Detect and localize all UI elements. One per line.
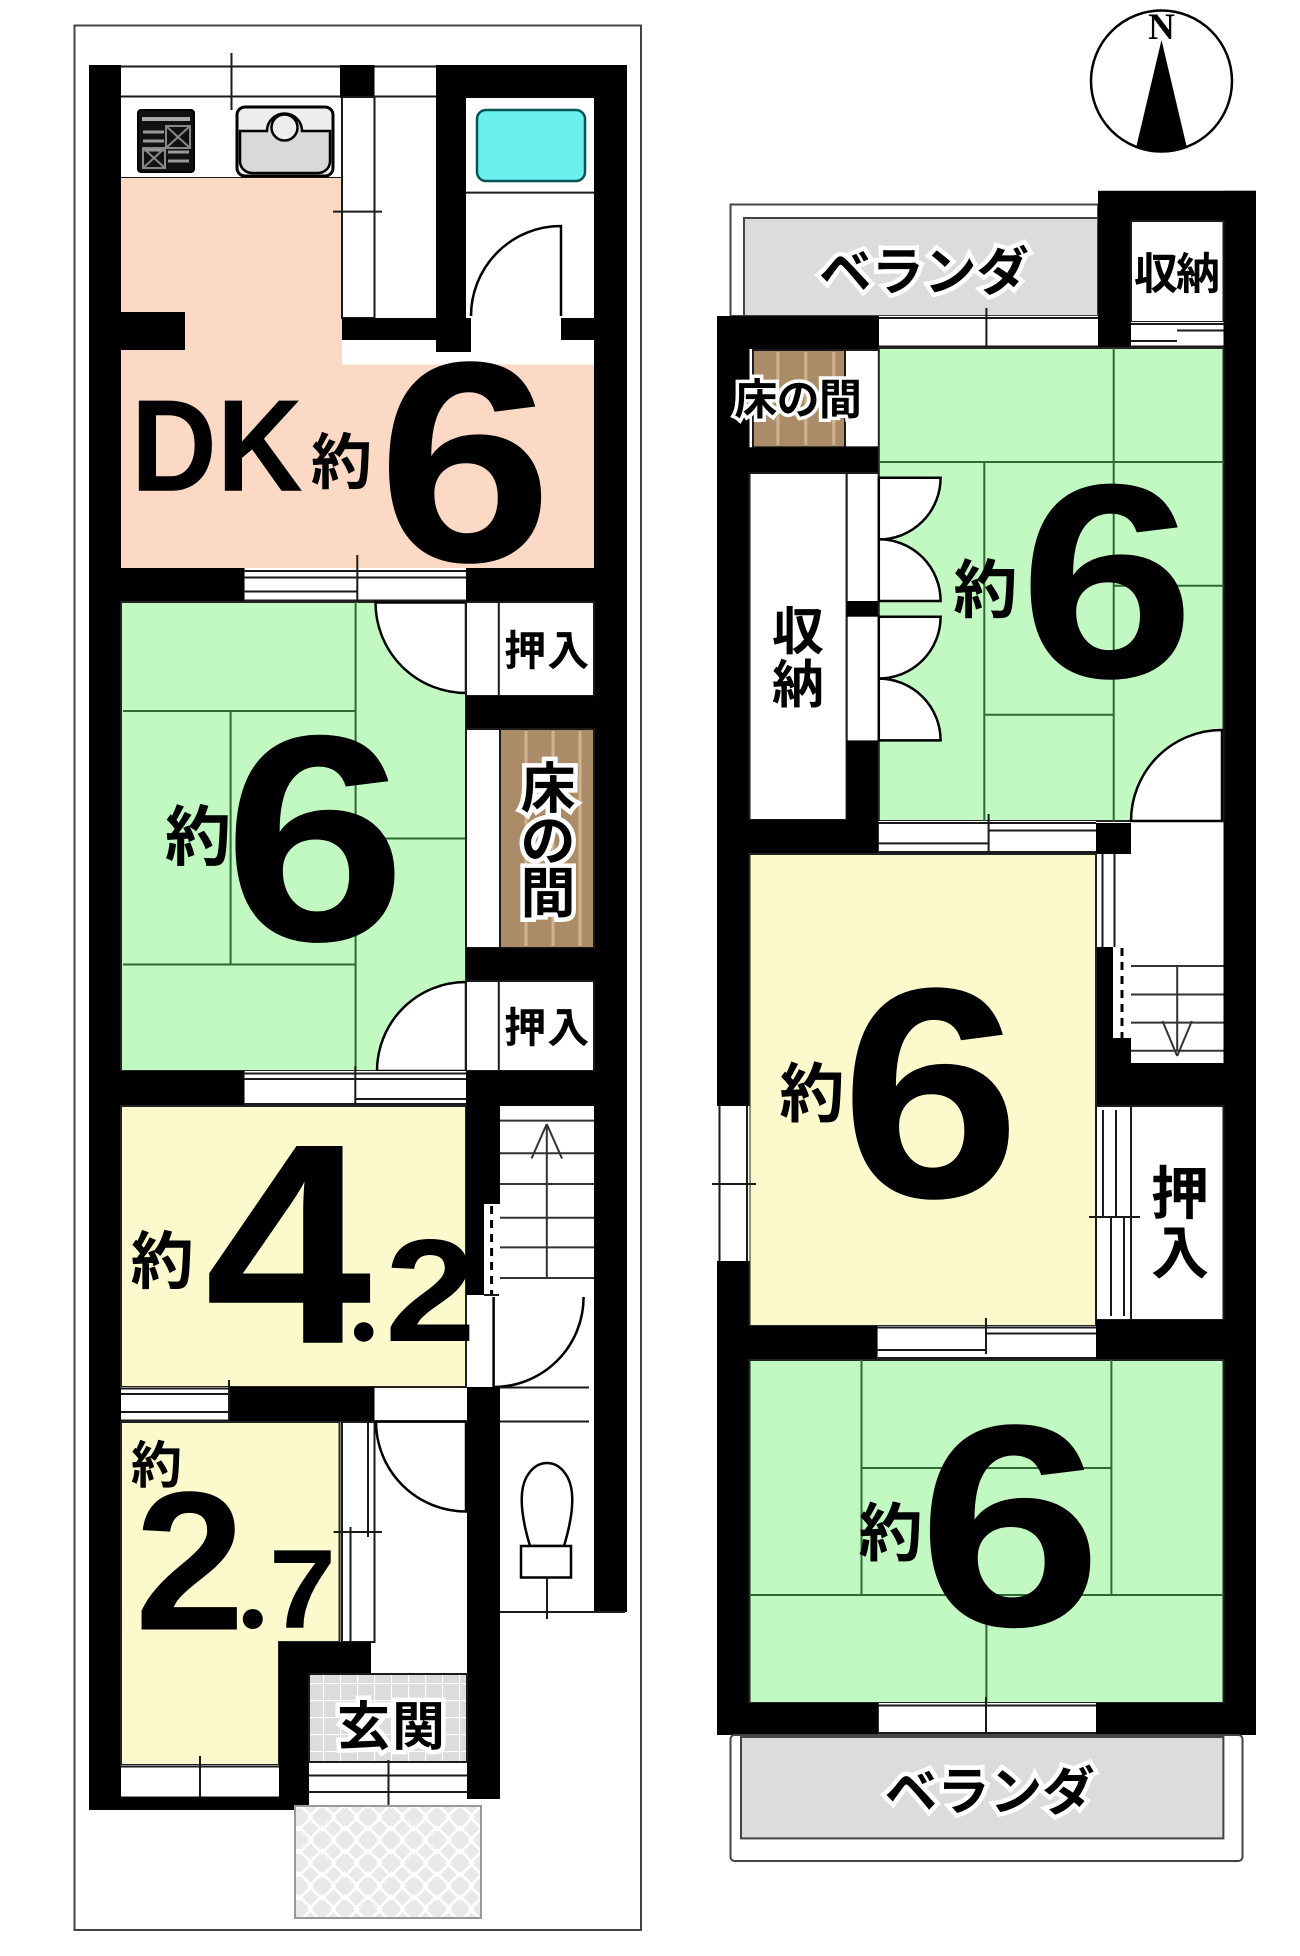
svg-text:6: 6 (918, 1365, 1103, 1687)
svg-text:6: 6 (841, 925, 1021, 1261)
svg-text:6: 6 (1019, 426, 1195, 736)
svg-text:2: 2 (135, 1451, 245, 1672)
svg-text:4: 4 (205, 1084, 374, 1404)
svg-text:N: N (1148, 7, 1175, 48)
svg-text:6: 6 (223, 675, 406, 1003)
svg-text:7: 7 (269, 1527, 336, 1652)
svg-text:DK: DK (131, 372, 303, 519)
svg-text:2: 2 (385, 1209, 476, 1372)
